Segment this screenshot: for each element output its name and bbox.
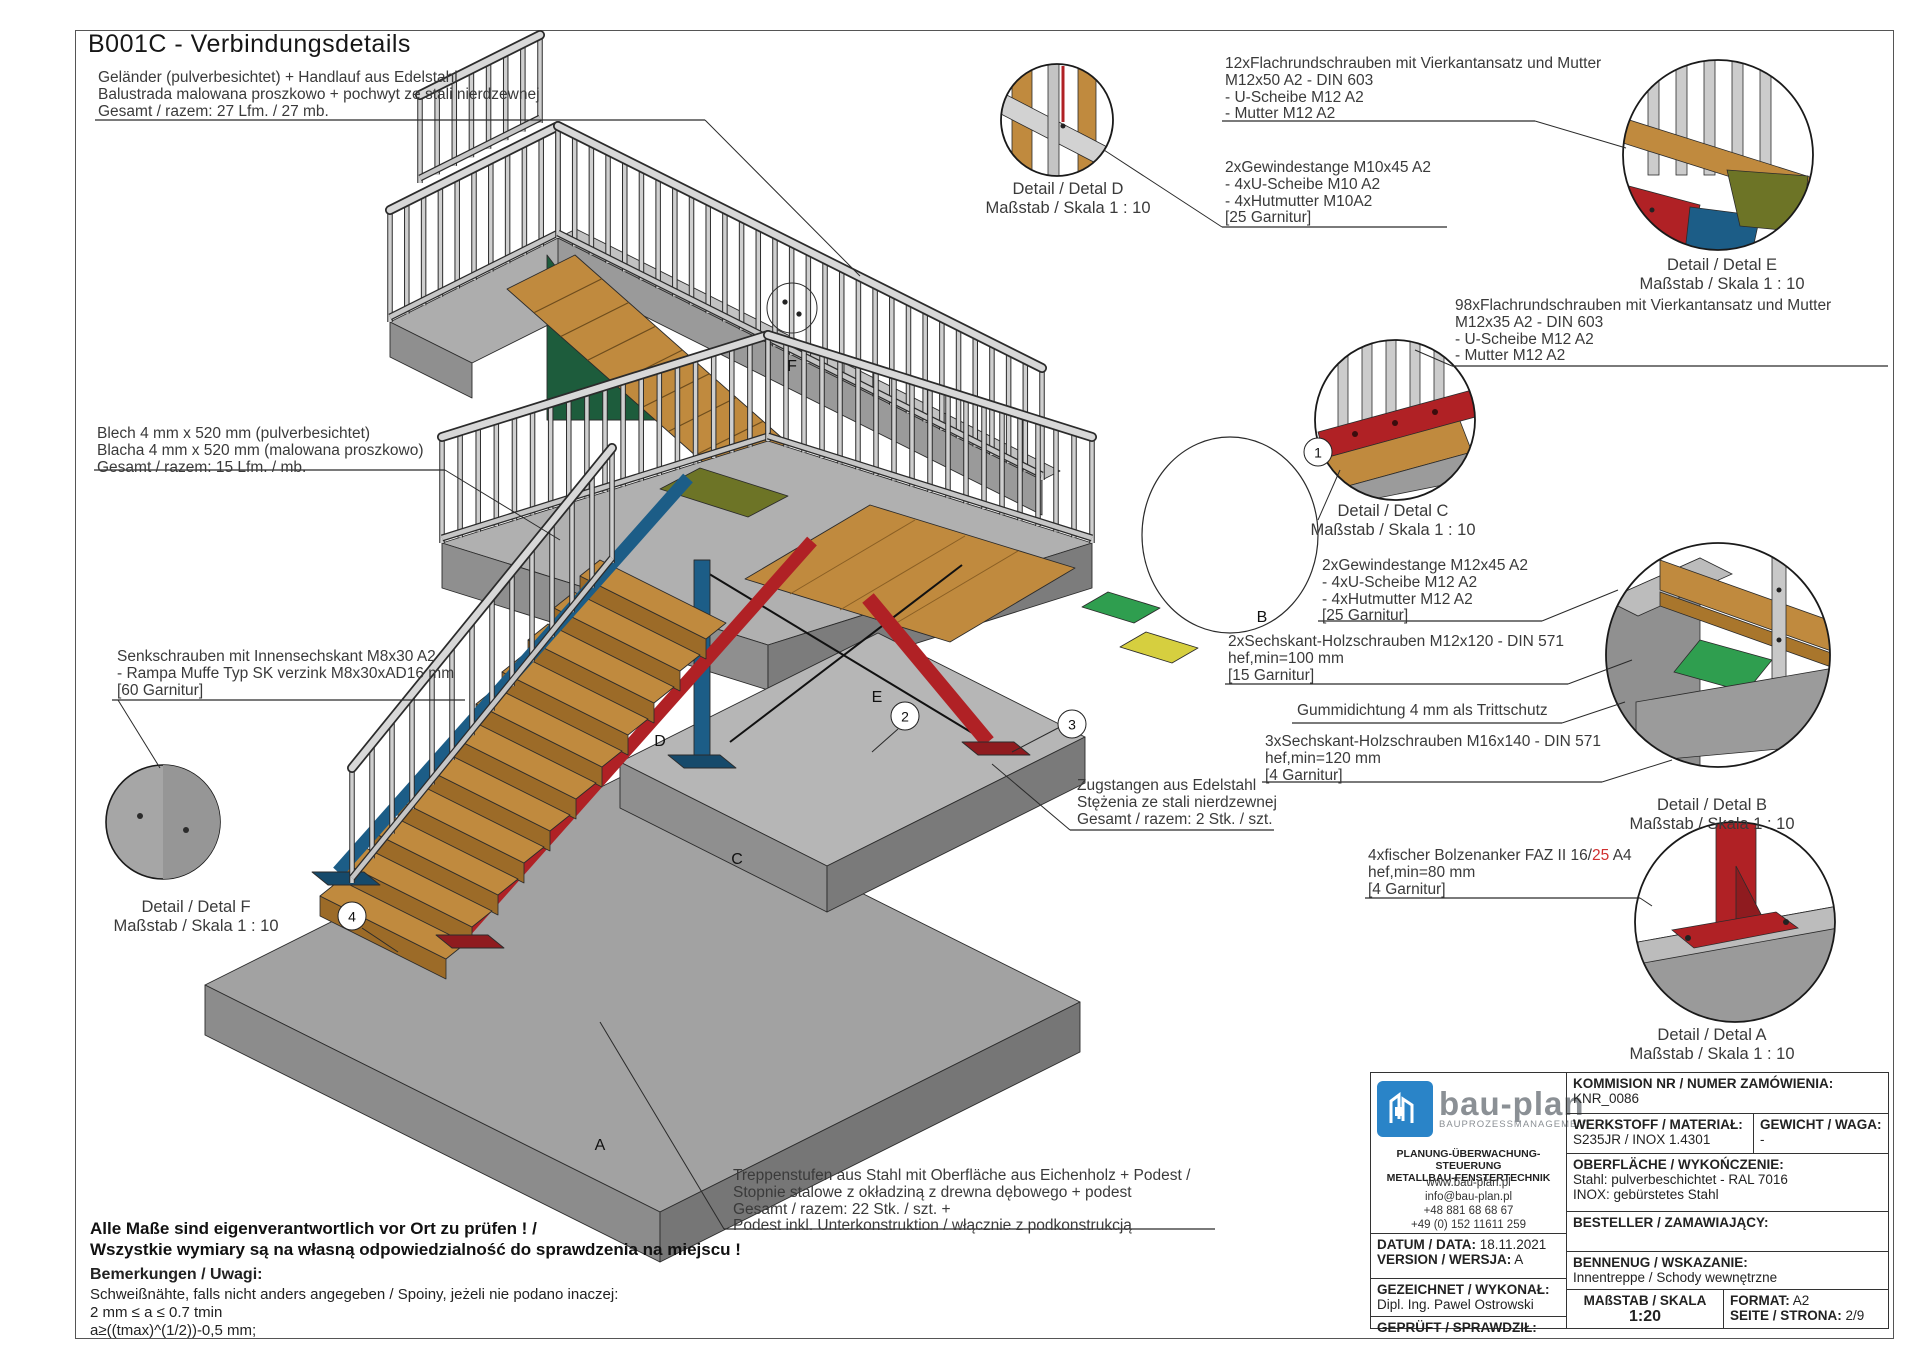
ref-letter-e: E [872,689,883,707]
ref-number-4: 4 [338,902,367,931]
ref-number-2: 2 [891,702,920,731]
remarks-heading: Bemerkungen / Uwagi: [90,1266,618,1284]
building-icon [1385,1089,1425,1129]
annotation-gewinde10: 2xGewindestange M10x45 A2 - 4xU-Scheibe … [1225,160,1431,227]
annotation-line: Gummidichtung 4 mm als Trittschutz [1297,703,1548,720]
annotation-line: 2xSechskant-Holzschrauben M12x120 - DIN … [1228,634,1564,651]
annotation-treppenstufen: Treppenstufen aus Stahl mit Oberfläche a… [733,1168,1190,1235]
detail-f-circle [106,765,220,879]
annotation-line: Geländer (pulverbesichtet) + Handlauf au… [98,70,540,87]
company-email: info@bau-plan.pl [1377,1190,1560,1204]
annotation-line: Gesamt / razem: 15 Lfm. / mb. [97,460,423,477]
annotation-sechskant3: 3xSechskant-Holzschrauben M16x140 - DIN … [1265,734,1601,784]
drawing-sheet: { "sheet": { "title": "B001C - Verbindun… [0,0,1920,1358]
company-phone: +48 881 68 68 67 [1377,1204,1560,1218]
field-datum: DATUM / DATA: 18.11.2021 VERSION / WERSJ… [1371,1233,1566,1278]
annotation-line: - 4xU-Scheibe M10 A2 [1225,177,1431,194]
annotation-senkschrauben: Senkschrauben mit Innensechskant M8x30 A… [117,649,454,699]
annotation-flachrund12: 12xFlachrundschrauben mit Vierkantansatz… [1225,56,1601,123]
annotation-line: 3xSechskant-Holzschrauben M16x140 - DIN … [1265,734,1601,751]
field-format-seite: FORMAT: A2 SEITE / STRONA: 2/9 [1723,1289,1888,1328]
annotation-line: hef,min=120 mm [1265,751,1601,768]
annotation-line: [15 Garnitur] [1228,668,1564,685]
note-check-dimensions: Alle Maße sind eigenverantwortlich vor O… [90,1218,741,1260]
note-remarks: Bemerkungen / Uwagi: Schweißnähte, falls… [90,1266,618,1340]
annotation-line: - 4xHutmutter M10A2 [1225,194,1431,211]
red-highlight: 25 [1592,847,1609,864]
annotation-line: - Rampa Muffe Typ SK verzink M8x30xAD16 … [117,666,454,683]
company-logo: bau-plan BAUPROZESSMANAGEMENT [1377,1081,1592,1137]
annotation-line: Gesamt / razem: 22 Stk. / szt. + [733,1202,1190,1219]
annotation-line: Blech 4 mm x 520 mm (pulverbesichtet) [97,426,423,443]
bau-plan-logo-icon [1377,1081,1433,1137]
annotation-line: Treppenstufen aus Stahl mit Oberfläche a… [733,1168,1190,1185]
annotation-flachrund98: 98xFlachrundschrauben mit Vierkantansatz… [1455,298,1831,365]
annotation-line: 4xfischer Bolzenanker FAZ II 16/25 A4 [1368,848,1632,865]
annotation-line: hef,min=80 mm [1368,865,1632,882]
ref-letter-a: A [595,1137,606,1155]
annotation-fischer: 4xfischer Bolzenanker FAZ II 16/25 A4 he… [1368,848,1632,898]
field-kommision: KOMMISION NR / NUMER ZAMÓWIENIA: KNR_008… [1566,1073,1888,1113]
detail-e-label: Detail / Detal E Maßstab / Skala 1 : 10 [1639,256,1804,294]
detail-c-label: Detail / Detal C Maßstab / Skala 1 : 10 [1310,502,1475,540]
annotation-line: Gesamt / razem: 2 Stk. / szt. [1077,812,1277,829]
annotation-gummidichtung: Gummidichtung 4 mm als Trittschutz [1297,703,1548,720]
annotation-line: - Mutter M12 A2 [1225,106,1601,123]
annotation-line: 12xFlachrundschrauben mit Vierkantansatz… [1225,56,1601,73]
ref-letter-b: B [1257,609,1268,627]
annotation-line: - Mutter M12 A2 [1455,348,1831,365]
reference-ellipse [1142,437,1318,633]
company-website: www.bau-plan.pl [1377,1176,1560,1190]
ref-letter-c: C [731,851,743,869]
yellow-plate [1120,632,1198,663]
annotation-line: hef,min=100 mm [1228,651,1564,668]
company-contact: www.bau-plan.pl info@bau-plan.pl +48 881… [1371,1173,1566,1235]
field-oberflaeche: OBERFLÄCHE / WYKOŃCZENIE: Stahl: pulverb… [1566,1153,1888,1211]
detail-d-label: Detail / Detal D Maßstab / Skala 1 : 10 [985,180,1150,218]
field-werkstoff: WERKSTOFF / MATERIAŁ: S235JR / INOX 1.43… [1566,1113,1753,1153]
detail-a-circle [1630,818,1840,1030]
field-besteller: BESTELLER / ZAMAWIAJĄCY: [1566,1211,1888,1251]
detail-f-label: Detail / Detal F Maßstab / Skala 1 : 10 [113,898,278,936]
annotation-line: Balustrada malowana proszkowo + pochwyt … [98,87,540,104]
annotation-line: - 4xU-Scheibe M12 A2 [1322,575,1528,592]
title-block: bau-plan BAUPROZESSMANAGEMENT PLANUNG-ÜB… [1370,1072,1889,1329]
field-massstab: MAßSTAB / SKALA 1:20 [1566,1289,1723,1328]
detail-d-circle [1001,60,1113,184]
company-phone: +49 (0) 152 11611 259 [1377,1218,1560,1232]
field-bennenug: BENNENUG / WSKAZANIE: Innentreppe / Scho… [1566,1251,1888,1289]
annotation-line: [60 Garnitur] [117,683,454,700]
annotation-sechskant2: 2xSechskant-Holzschrauben M12x120 - DIN … [1228,634,1564,684]
ref-number-1: 1 [1304,438,1333,467]
annotation-gelaender: Geländer (pulverbesichtet) + Handlauf au… [98,70,540,120]
field-gewicht: GEWICHT / WAGA: - [1753,1113,1888,1153]
field-geprueft: GEPRÜFT / SPRAWDZIŁ: [1371,1316,1566,1356]
annotation-line: - U-Scheibe M12 A2 [1455,332,1831,349]
ref-letter-f: F [787,358,797,376]
annotation-zugstangen: Zugstangen aus Edelstahl Stężenia ze sta… [1077,778,1277,828]
annotation-line: 98xFlachrundschrauben mit Vierkantansatz… [1455,298,1831,315]
annotation-line: - U-Scheibe M12 A2 [1225,90,1601,107]
ref-letter-d: D [654,733,666,751]
annotation-line: [25 Garnitur] [1322,608,1528,625]
annotation-blech: Blech 4 mm x 520 mm (pulverbesichtet) Bl… [97,426,423,476]
annotation-line: [4 Garnitur] [1265,768,1601,785]
detail-b-circle [1601,538,1836,773]
detail-b-label: Detail / Detal B Maßstab / Skala 1 : 10 [1629,796,1794,834]
annotation-line: 2xGewindestange M10x45 A2 [1225,160,1431,177]
detail-a-label: Detail / Detal A Maßstab / Skala 1 : 10 [1629,1026,1794,1064]
annotation-line: [25 Garnitur] [1225,210,1431,227]
annotation-line: M12x35 A2 - DIN 603 [1455,315,1831,332]
annotation-line: Stopnie stalowe z okładziną z drewna dęb… [733,1185,1190,1202]
annotation-line: Stężenia ze stali nierdzewnej [1077,795,1277,812]
annotation-line: Blacha 4 mm x 520 mm (malowana proszkowo… [97,443,423,460]
annotation-line: [4 Garnitur] [1368,882,1632,899]
annotation-line: Gesamt / razem: 27 Lfm. / 27 mb. [98,104,540,121]
annotation-line: M12x50 A2 - DIN 603 [1225,73,1601,90]
annotation-line: Senkschrauben mit Innensechskant M8x30 A… [117,649,454,666]
green-plate [1082,592,1160,623]
annotation-line: 2xGewindestange M12x45 A2 [1322,558,1528,575]
annotation-line: Podest inkl. Unterkonstruktion / włączni… [733,1218,1190,1235]
ref-number-3: 3 [1058,710,1087,739]
annotation-line: Zugstangen aus Edelstahl [1077,778,1277,795]
annotation-gewinde12: 2xGewindestange M12x45 A2 - 4xU-Scheibe … [1322,558,1528,625]
field-gezeichnet: GEZEICHNET / WYKONAŁ: Dipl. Ing. Pawel O… [1371,1278,1566,1316]
annotation-line: - 4xHutmutter M12 A2 [1322,592,1528,609]
